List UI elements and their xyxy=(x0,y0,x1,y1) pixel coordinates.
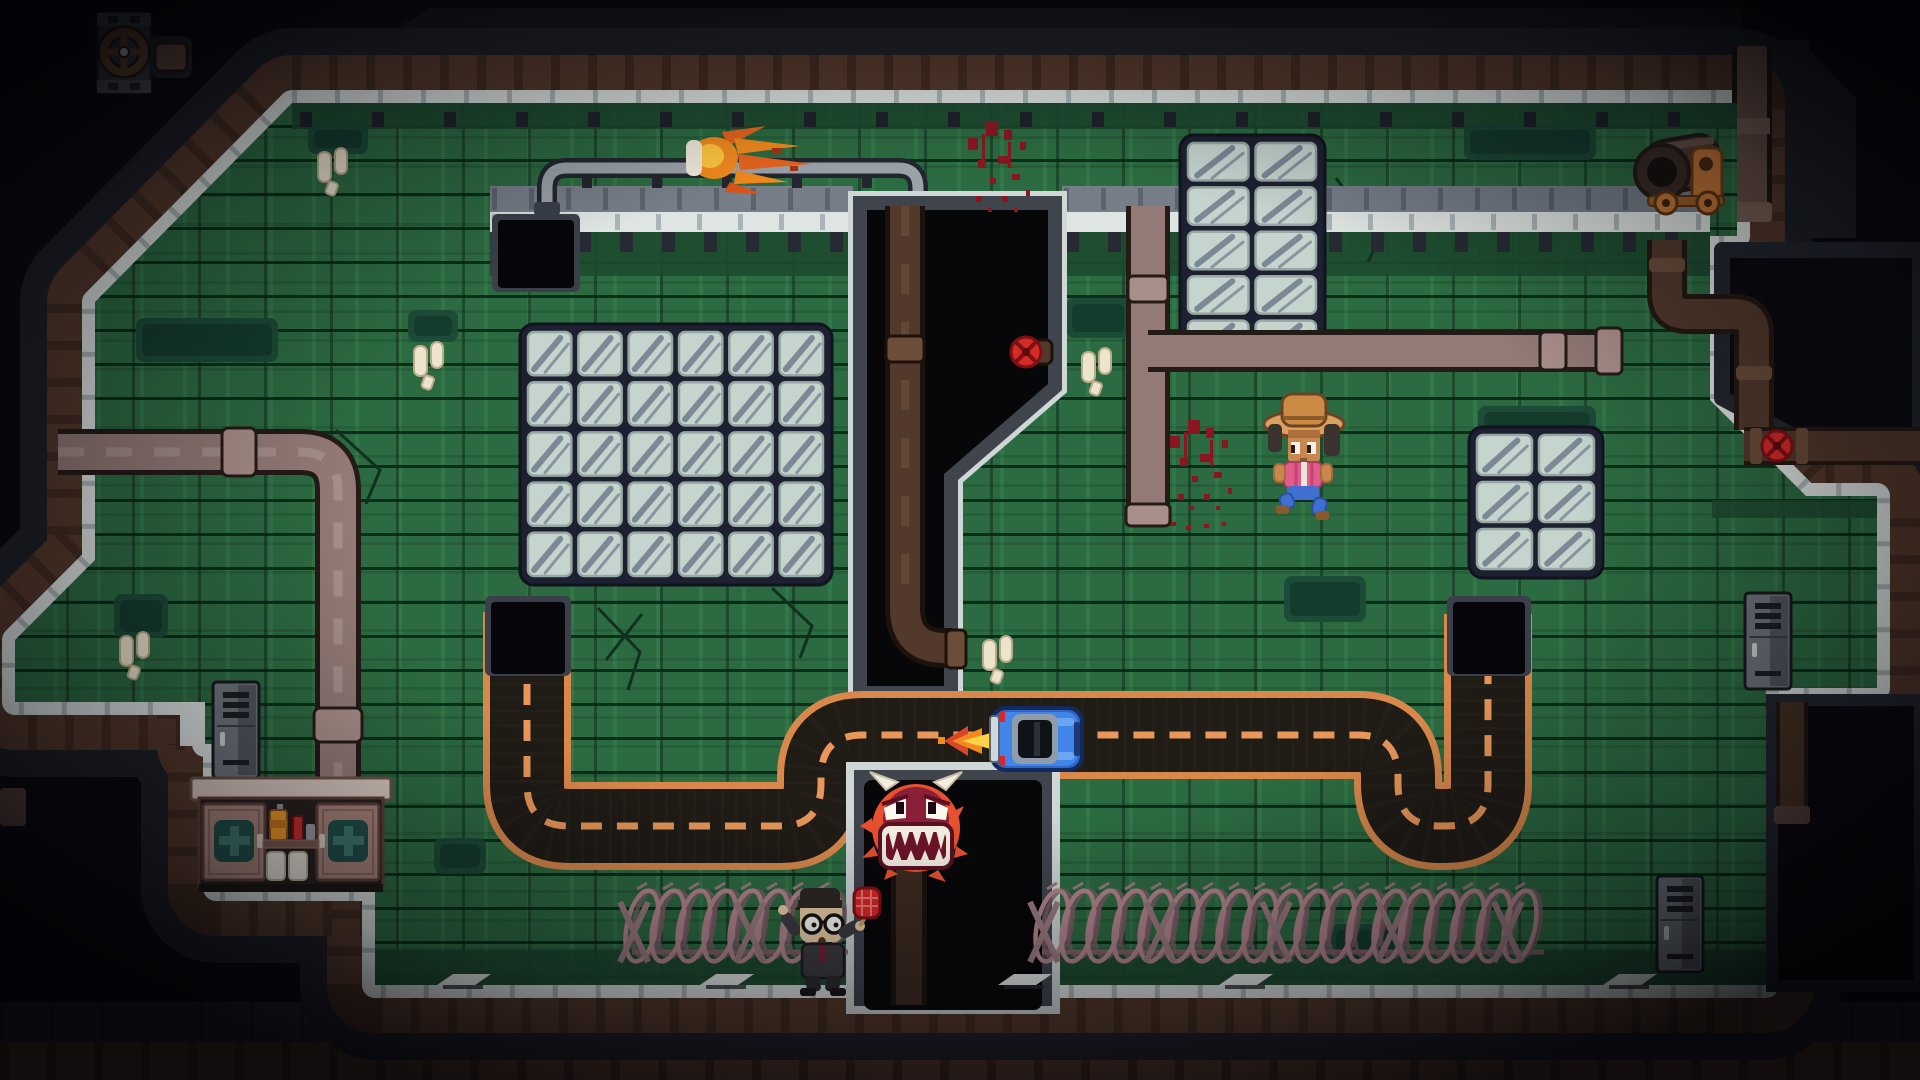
blood-splatter-mid xyxy=(1188,420,1200,434)
cabinet-handle xyxy=(257,834,263,848)
inner-wall-teeth xyxy=(1581,232,1594,252)
blood-splatter-mid xyxy=(1184,432,1187,466)
bones xyxy=(414,346,427,376)
blood-splatter-mid xyxy=(1216,506,1220,510)
wire-barb xyxy=(1151,883,1161,889)
top-wall-teeth xyxy=(1308,112,1320,127)
wire-barb xyxy=(637,883,647,889)
marshal-hand-left xyxy=(778,905,788,915)
blood-splatter-mid xyxy=(1190,506,1194,510)
cannon-wheel-hub xyxy=(1704,199,1712,207)
locker-vent xyxy=(1755,613,1781,619)
alcove-pipe-collar xyxy=(1736,366,1772,380)
wire-barb xyxy=(1203,883,1213,889)
blood-splatter-mid xyxy=(1170,436,1180,448)
moss-patch-core xyxy=(1470,130,1590,154)
moss-patch-core xyxy=(1072,304,1124,332)
fireball-soot xyxy=(772,148,782,154)
wire-barb xyxy=(1281,883,1291,889)
car-tail-light xyxy=(999,712,1005,722)
valve-hub xyxy=(1773,442,1781,450)
blood-splatter-top xyxy=(1012,174,1020,180)
wire-barb xyxy=(741,883,751,889)
corridor-pipe-collar xyxy=(886,336,924,362)
inner-wall-teeth xyxy=(704,232,717,252)
monster-pupil xyxy=(928,802,936,814)
tee-pipe-collar xyxy=(1128,276,1168,302)
alcove-pipe-collar xyxy=(1796,428,1808,464)
top-pit-opening[interactable] xyxy=(498,220,574,288)
blood-splatter-mid xyxy=(1214,472,1222,478)
inner-wall-highlight xyxy=(1325,212,1710,232)
blood-drip xyxy=(1204,524,1209,528)
bones xyxy=(1082,352,1095,382)
blood-splatter-top xyxy=(982,134,985,168)
locker-vent xyxy=(223,692,249,698)
tee-pipe-cap xyxy=(1126,504,1170,526)
alcove-pipe-collar xyxy=(1750,428,1762,464)
locker-vent xyxy=(1755,623,1781,629)
moss-patch-core xyxy=(440,844,480,868)
tee-pipe-cap xyxy=(1596,328,1622,374)
wire-barb xyxy=(1489,883,1499,889)
bone-chip xyxy=(127,665,141,681)
bone-chip xyxy=(421,375,435,391)
blood-splatter-top xyxy=(988,208,992,212)
top-wall-teeth xyxy=(804,112,816,127)
blood-splatter-top xyxy=(1014,208,1018,212)
inner-wall-teeth xyxy=(1413,232,1426,252)
moss-patch-core xyxy=(120,600,162,632)
blood-splatter-mid xyxy=(1178,494,1184,500)
bones xyxy=(983,640,996,670)
wire-barb xyxy=(1073,883,1083,889)
wire-barb xyxy=(1255,883,1265,889)
car-front-grille xyxy=(1074,722,1080,756)
locker-vent xyxy=(1667,906,1693,912)
blood-splatter-mid xyxy=(1210,440,1213,466)
moss-patch-core xyxy=(314,130,362,148)
cowboy-hair xyxy=(1324,424,1340,456)
blood-splatter-top xyxy=(968,138,978,150)
car-seat-divider xyxy=(1034,722,1040,756)
bandage-roll[interactable] xyxy=(267,852,285,880)
road-pit-right[interactable] xyxy=(1453,602,1525,674)
inner-wall-teeth xyxy=(1455,232,1468,252)
moss-patch-core xyxy=(1290,582,1360,616)
wire-barb xyxy=(767,883,777,889)
bones xyxy=(120,636,133,666)
wire-barb xyxy=(1125,883,1135,889)
hanging-pipe-cap xyxy=(1774,806,1810,824)
inner-wall-teeth xyxy=(1539,232,1552,252)
car-exhaust-spark xyxy=(938,737,945,744)
game-viewport[interactable] xyxy=(0,0,1920,1080)
top-wall-teeth xyxy=(1236,112,1248,127)
moss-patch-core xyxy=(142,324,272,356)
floor-crack xyxy=(598,608,640,690)
cowboy-mouth xyxy=(1300,458,1307,461)
cabinet-shelf xyxy=(263,840,319,848)
marshal-shoe xyxy=(800,988,816,996)
car-rear-bumper xyxy=(990,716,999,762)
top-wall-teeth xyxy=(1092,112,1104,127)
wall-glint-shadow xyxy=(1225,985,1265,989)
left-pipe-collar xyxy=(222,428,256,476)
inner-wall-teeth xyxy=(662,232,675,252)
blood-splatter-mid xyxy=(1222,440,1228,448)
medicine-bottle-label xyxy=(270,820,287,828)
blood-splatter-top xyxy=(986,122,998,136)
marshal-pupil xyxy=(834,923,839,928)
blood-splatter-top xyxy=(1008,142,1011,168)
fireball-tongue xyxy=(734,138,800,154)
marshal-shoe xyxy=(830,988,846,996)
inner-wall-teeth xyxy=(788,232,801,252)
locker-vent xyxy=(1667,954,1693,959)
cabinet-base-shadow xyxy=(199,884,383,892)
cowboy-pupil xyxy=(1291,445,1295,453)
flame-rail-bolts xyxy=(582,176,592,188)
wire-barb xyxy=(793,883,803,889)
grass-shadow-pocket xyxy=(1712,500,1877,518)
flame-rail-cap xyxy=(534,202,560,215)
bones xyxy=(318,152,331,182)
corridor-pipe-cap xyxy=(946,630,966,668)
cowboy-arm xyxy=(1274,464,1285,482)
moss-patch-core xyxy=(1484,412,1590,426)
inner-wall-teeth xyxy=(830,232,843,252)
wire-barb xyxy=(663,883,673,889)
bone-chip xyxy=(1089,381,1103,397)
wall-glint-shadow xyxy=(706,985,746,989)
cowboy-hair xyxy=(1268,424,1282,452)
bone-chip xyxy=(990,669,1004,685)
locker-vent xyxy=(223,712,249,718)
blood-splatter-mid xyxy=(1192,476,1198,482)
marshal-tie xyxy=(820,946,826,962)
blood-splatter-top xyxy=(1002,196,1008,202)
top-wall-teeth xyxy=(1668,112,1680,127)
wire-barb xyxy=(689,883,699,889)
blood-splatter-mid xyxy=(1204,494,1210,500)
top-wall-teeth xyxy=(300,112,312,127)
flame-rail-bolts xyxy=(792,176,802,188)
medicine-vial[interactable] xyxy=(293,816,303,840)
top-wall-teeth xyxy=(876,112,888,127)
left-pipe-highlight xyxy=(58,452,338,788)
cowboy-boot xyxy=(1276,505,1289,514)
cabinet-handle xyxy=(319,834,325,848)
cowboy-strap xyxy=(1301,462,1307,488)
tee-pipe-collar xyxy=(1540,332,1566,370)
left-pipe-outline xyxy=(58,452,338,788)
bones xyxy=(137,632,149,658)
locker-handle xyxy=(220,732,225,746)
top-wall-teeth xyxy=(732,112,744,127)
blood-splatter-mid xyxy=(1228,488,1232,494)
cabinet-cross-icon xyxy=(333,836,364,845)
top-wall-teeth xyxy=(660,112,672,127)
cannon-bolt xyxy=(1699,157,1713,171)
cowboy-pupil xyxy=(1307,445,1311,453)
cannon-wheel-hub xyxy=(1662,199,1670,207)
locker-vent xyxy=(1667,886,1693,892)
inner-wall-teeth xyxy=(1623,232,1636,252)
fireball-soot xyxy=(790,166,798,171)
locker-vent xyxy=(1667,896,1693,902)
inner-wall-teeth xyxy=(1108,232,1121,252)
bone-chip xyxy=(325,181,339,197)
wire-barb xyxy=(1333,883,1343,889)
top-wall-teeth xyxy=(1596,112,1608,127)
marshal-hair-fringe xyxy=(798,900,842,908)
bones xyxy=(1099,348,1111,374)
top-wall-teeth xyxy=(1524,112,1536,127)
wall-glint-shadow xyxy=(1609,985,1649,989)
inner-wall-teeth xyxy=(1371,232,1384,252)
blood-splatter-mid xyxy=(1206,428,1214,438)
red-signal-paddle[interactable] xyxy=(854,888,880,918)
bones xyxy=(431,342,443,368)
wire-barb xyxy=(1437,883,1447,889)
top-wall-teeth xyxy=(1020,112,1032,127)
car-tail-light xyxy=(999,756,1005,766)
cowboy-boot xyxy=(1316,511,1329,520)
wire-barb xyxy=(1385,883,1395,889)
inner-wall-teeth xyxy=(620,232,633,252)
marshal-pupil xyxy=(812,923,817,928)
grass-shadow-bottom xyxy=(375,950,1766,985)
locker-vent xyxy=(223,760,249,765)
top-wall-teeth xyxy=(1164,112,1176,127)
floor-crack xyxy=(772,588,812,658)
moss-patch-core xyxy=(414,316,452,336)
cowboy-hat-shadow xyxy=(1288,430,1320,438)
blood-splatter-top xyxy=(1026,190,1030,196)
wire-barb xyxy=(715,883,725,889)
wire-barb xyxy=(1359,883,1369,889)
locker-handle xyxy=(1664,926,1669,940)
alcove-pipe-collar xyxy=(1649,258,1685,272)
road-pit-left[interactable] xyxy=(491,602,565,674)
valve-hub xyxy=(1022,348,1030,356)
left-pipe-collar xyxy=(314,708,362,742)
inner-wall-teeth xyxy=(1497,232,1510,252)
locker-handle xyxy=(1752,643,1757,657)
wire-barb xyxy=(1177,883,1187,889)
locker-vent xyxy=(223,702,249,708)
flame-rail-bolts xyxy=(862,176,872,188)
scene-layer xyxy=(0,0,1920,1080)
blood-splatter-top xyxy=(976,196,982,202)
top-wall-teeth xyxy=(1452,112,1464,127)
cowboy-hat-crown xyxy=(1282,394,1326,426)
top-wall-teeth xyxy=(948,112,960,127)
monster-pupil xyxy=(896,802,904,814)
wire-barb xyxy=(1515,883,1525,889)
wire-barb xyxy=(1307,883,1317,889)
bones xyxy=(335,148,347,174)
wire-barb xyxy=(1229,883,1239,889)
blood-splatter-mid xyxy=(1200,454,1210,462)
wall-glint-shadow xyxy=(1004,985,1044,989)
inner-wall-teeth xyxy=(1329,232,1342,252)
inner-wall-teeth xyxy=(1066,232,1079,252)
fireball-hot-edge xyxy=(686,140,702,176)
blood-drip xyxy=(1222,522,1226,526)
cannon-muzzle-bore xyxy=(1647,157,1677,187)
blood-splatter-top xyxy=(998,156,1008,164)
blood-splatter-top xyxy=(990,178,996,184)
locker-vent xyxy=(1755,603,1781,609)
wall-glint-shadow xyxy=(443,985,483,989)
blood-splatter-top xyxy=(1020,142,1026,150)
top-wall-teeth xyxy=(588,112,600,127)
bones xyxy=(1000,636,1012,662)
wire-barb xyxy=(1099,883,1109,889)
blood-splatter-top xyxy=(1004,130,1012,140)
top-wall-teeth xyxy=(516,112,528,127)
medicine-jar xyxy=(306,824,315,840)
top-wall-teeth xyxy=(1380,112,1392,127)
blood-drip xyxy=(1186,526,1191,530)
top-wall-teeth xyxy=(444,112,456,127)
wire-barb xyxy=(1463,883,1473,889)
bandage-roll[interactable] xyxy=(289,852,307,880)
cowboy-arm xyxy=(1321,464,1332,482)
top-wall-teeth xyxy=(372,112,384,127)
cabinet-cross-icon xyxy=(219,836,250,845)
left-pipe xyxy=(58,452,338,788)
locker-vent xyxy=(1755,671,1781,676)
wire-barb xyxy=(1411,883,1421,889)
flame-rail-bolts xyxy=(652,176,662,188)
inner-wall-teeth xyxy=(746,232,759,252)
